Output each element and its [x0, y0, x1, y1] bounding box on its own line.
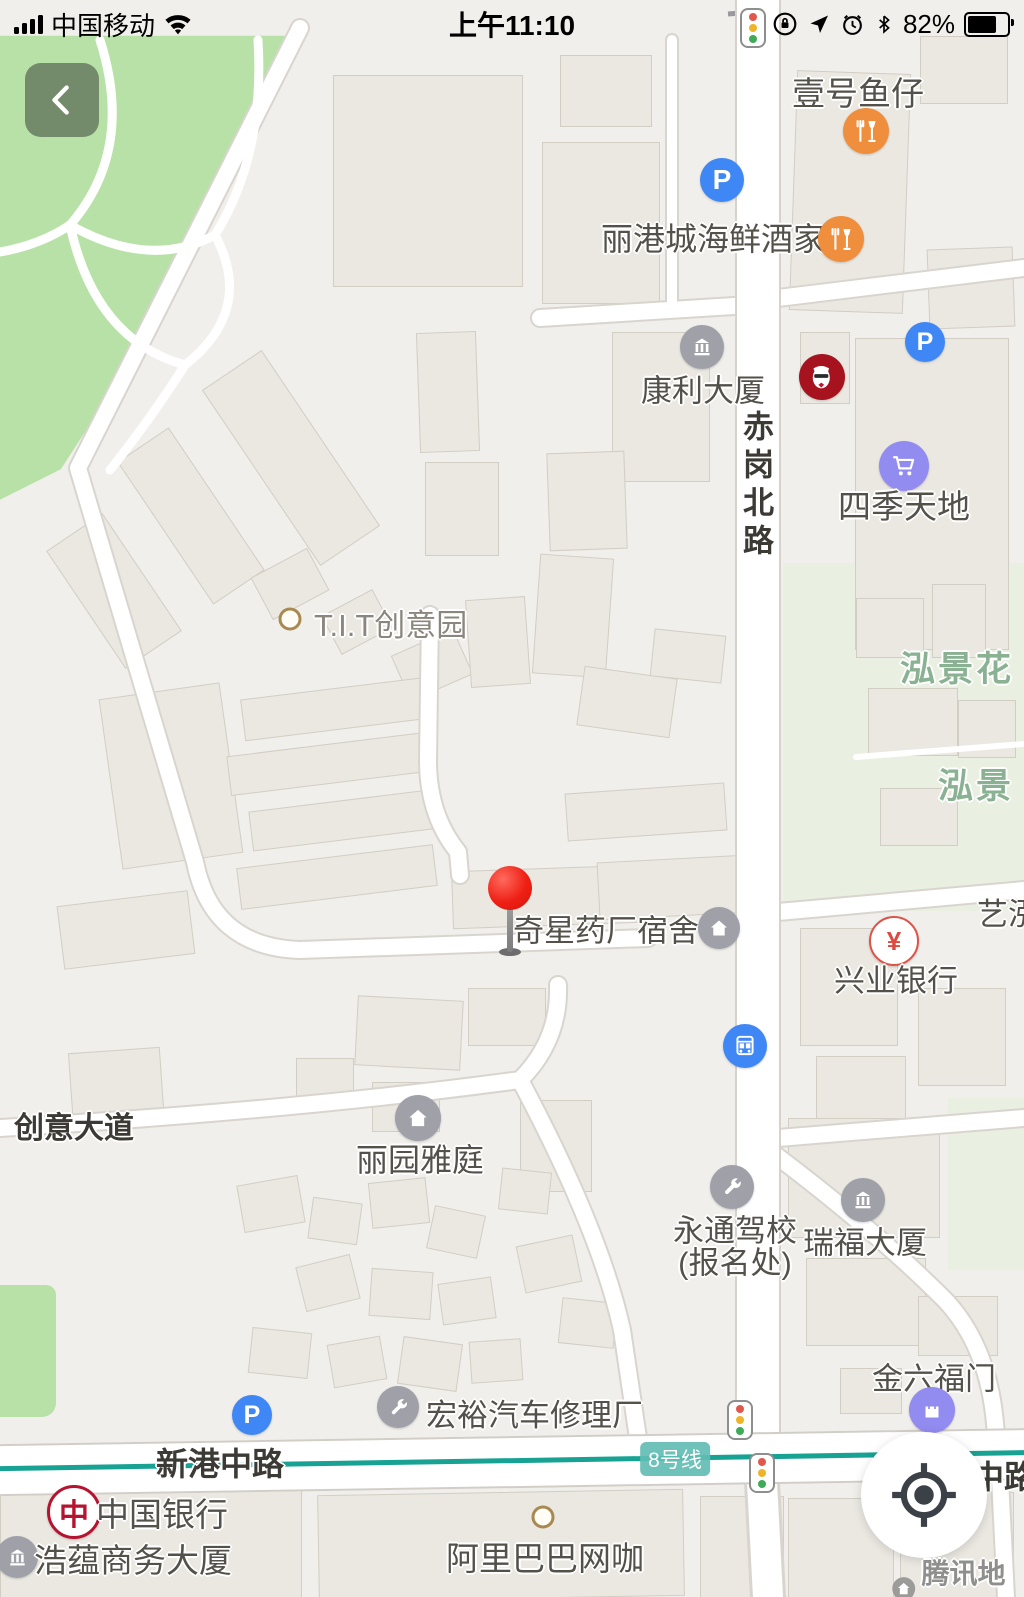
- parking-icon[interactable]: P: [905, 322, 945, 362]
- poi-ruifu-label[interactable]: 瑞福大厦: [803, 1218, 927, 1263]
- road-label-chigang: 赤岗北路: [733, 410, 778, 562]
- poi-xingye-label[interactable]: 兴业银行: [834, 956, 958, 1001]
- alarm-icon: [840, 12, 865, 37]
- poi-qixing-label[interactable]: 奇星药厂宿舍: [513, 906, 699, 951]
- location-arrow-icon: [807, 12, 831, 36]
- bluetooth-icon: [874, 11, 894, 37]
- poi-sijitiandi-label[interactable]: 四季天地: [838, 480, 970, 528]
- poi-haoyun-label[interactable]: 浩蕴商务大厦: [34, 1534, 232, 1582]
- parking-glyph: P: [244, 1401, 261, 1430]
- poi-ligangcheng-label[interactable]: 丽港城海鲜酒家: [601, 214, 825, 260]
- locate-button[interactable]: [861, 1432, 987, 1558]
- poi-hongyu-label[interactable]: 宏裕汽车修理厂: [426, 1390, 643, 1435]
- wifi-icon: [163, 12, 193, 36]
- parking-icon[interactable]: P: [232, 1395, 272, 1435]
- home-icon[interactable]: [698, 907, 740, 949]
- pin-head: [488, 866, 532, 910]
- poi-dot-icon[interactable]: [532, 1506, 555, 1529]
- poi-yongtong-label-line2[interactable]: (报名处): [678, 1238, 792, 1283]
- bank-of-china-icon[interactable]: 中: [47, 1485, 101, 1539]
- battery-percent-label: 82%: [903, 9, 955, 40]
- back-button[interactable]: [25, 63, 99, 137]
- tencent-maps-watermark: 腾讯地图: [890, 1552, 1024, 1597]
- chevron-left-icon: [42, 80, 82, 120]
- poi-dot-icon[interactable]: [279, 608, 302, 631]
- shopping-bag-icon[interactable]: [909, 1387, 955, 1433]
- poi-alibaba-label[interactable]: 阿里巴巴网咖: [446, 1532, 644, 1580]
- clock-label: 上午11:10: [449, 4, 575, 44]
- poi-yihao-yuzai-label[interactable]: 壹号鱼仔: [792, 67, 924, 115]
- rotation-lock-icon: [772, 11, 798, 37]
- traffic-light-icon: [749, 1453, 775, 1493]
- traffic-light-icon: [727, 1400, 753, 1440]
- poi-liyuan-label[interactable]: 丽园雅庭: [356, 1135, 484, 1181]
- map-canvas[interactable]: 赤岗北路 新港中路 中路 创意大道 8号线 壹号鱼仔 丽港城海鲜酒家 P 康利大…: [0, 0, 1024, 1597]
- poi-hongjing-label[interactable]: 泓景: [938, 758, 1014, 809]
- road-label-chuangyi: 创意大道: [14, 1103, 134, 1147]
- bus-station-icon[interactable]: [723, 1024, 767, 1068]
- poi-hongjinghua-label[interactable]: 泓景花: [900, 641, 1014, 692]
- building-icon[interactable]: [680, 325, 724, 369]
- locate-crosshair-icon: [885, 1456, 963, 1534]
- boc-glyph: 中: [59, 1490, 89, 1534]
- roads-layer: [0, 0, 1024, 1597]
- yuan-glyph: ¥: [887, 926, 901, 957]
- road-label-xingang: 新港中路: [156, 1439, 284, 1485]
- carrier-label: 中国移动: [51, 6, 155, 43]
- poi-tit-label[interactable]: T.I.T创意园: [314, 600, 467, 645]
- metro-line8-badge: 8号线: [640, 1442, 710, 1476]
- status-bar: 中国移动 上午11:10: [0, 0, 1024, 48]
- parking-glyph: P: [917, 328, 934, 357]
- wrench-icon[interactable]: [377, 1386, 419, 1428]
- building-icon[interactable]: [841, 1178, 885, 1222]
- parking-glyph: P: [713, 164, 732, 196]
- battery-icon: [964, 12, 1010, 37]
- signal-strength-icon: [14, 14, 43, 34]
- tencent-maps-logo-icon: [890, 1575, 917, 1597]
- wrench-icon[interactable]: [710, 1165, 754, 1209]
- watermark-label: 腾讯地图: [921, 1552, 1024, 1597]
- poi-kangli-label[interactable]: 康利大厦: [641, 366, 765, 411]
- parking-icon[interactable]: P: [700, 158, 744, 202]
- poi-yihong-label[interactable]: 艺泓: [977, 889, 1024, 934]
- restaurant-icon[interactable]: [843, 108, 889, 154]
- poi-boc-label[interactable]: 中国银行: [96, 1488, 228, 1536]
- kfc-icon[interactable]: [799, 354, 845, 400]
- restaurant-icon[interactable]: [818, 216, 864, 262]
